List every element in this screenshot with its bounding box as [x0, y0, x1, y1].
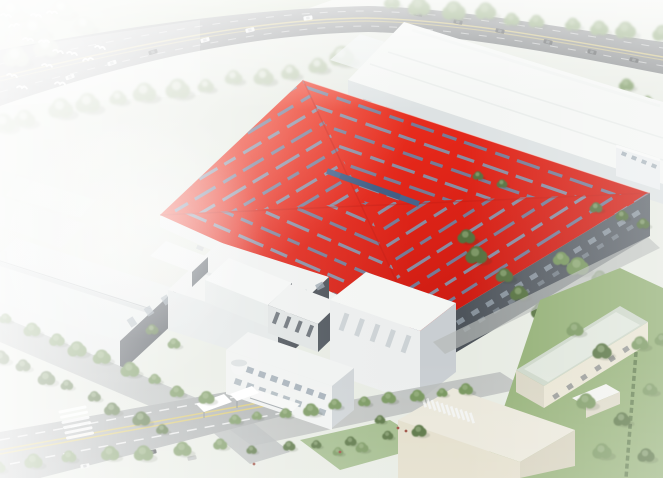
- atmospheric-haze: [0, 0, 663, 478]
- haze-bottom: [0, 0, 663, 478]
- aerial-factory-rendering: [0, 0, 663, 478]
- scene-canvas: [0, 0, 663, 478]
